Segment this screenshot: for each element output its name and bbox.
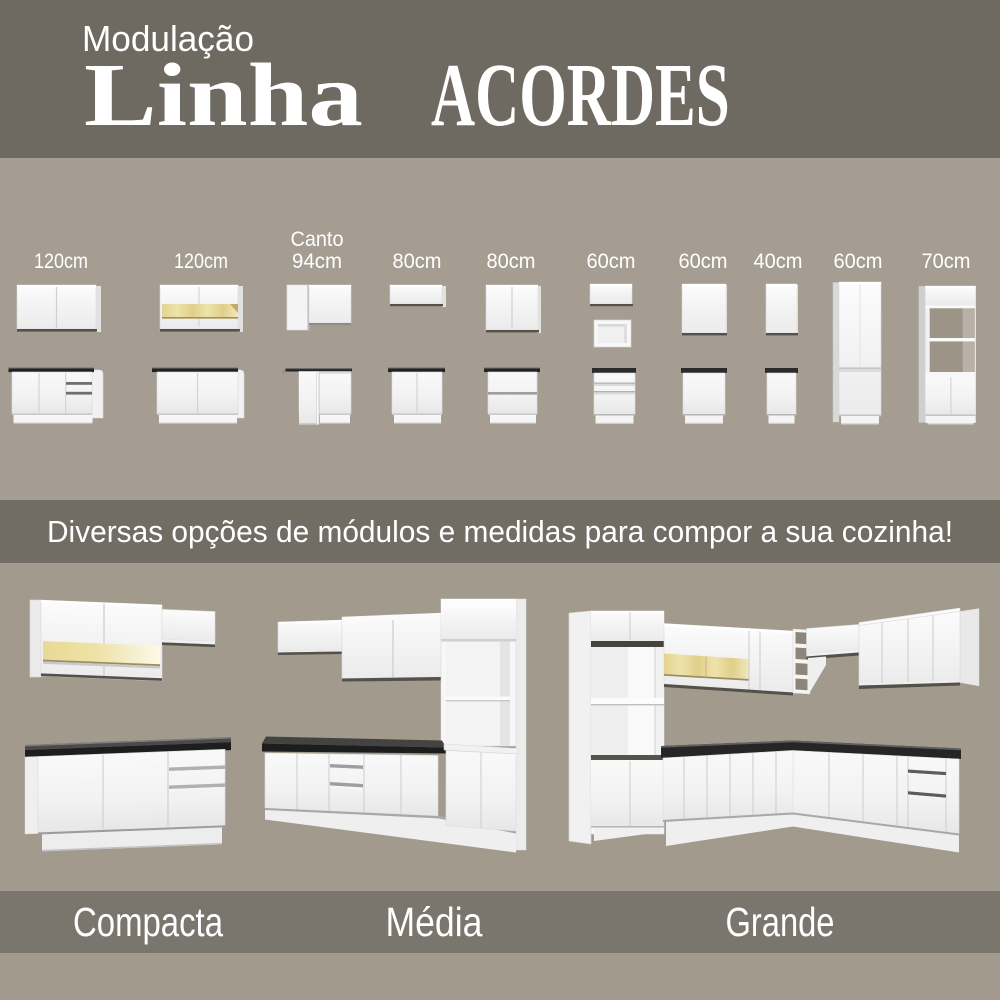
svg-text:60cm: 60cm [834,250,883,273]
svg-text:94cm: 94cm [292,250,342,273]
svg-text:80cm: 80cm [393,250,442,273]
svg-text:120cm: 120cm [174,250,228,273]
svg-text:60cm: 60cm [679,250,728,273]
svg-text:70cm: 70cm [922,250,971,273]
svg-text:80cm: 80cm [487,250,536,273]
svg-text:120cm: 120cm [34,250,88,273]
svg-text:Grande: Grande [726,898,835,944]
svg-text:Canto: Canto [291,228,344,251]
svg-text:60cm: 60cm [587,250,636,273]
svg-text:Média: Média [386,900,484,946]
svg-text:ACORDES: ACORDES [431,44,730,145]
svg-text:Diversas opções de módulos e m: Diversas opções de módulos e medidas par… [47,514,953,549]
svg-text:40cm: 40cm [754,250,803,273]
svg-text:Linha: Linha [84,45,363,145]
svg-text:Compacta: Compacta [73,899,223,945]
